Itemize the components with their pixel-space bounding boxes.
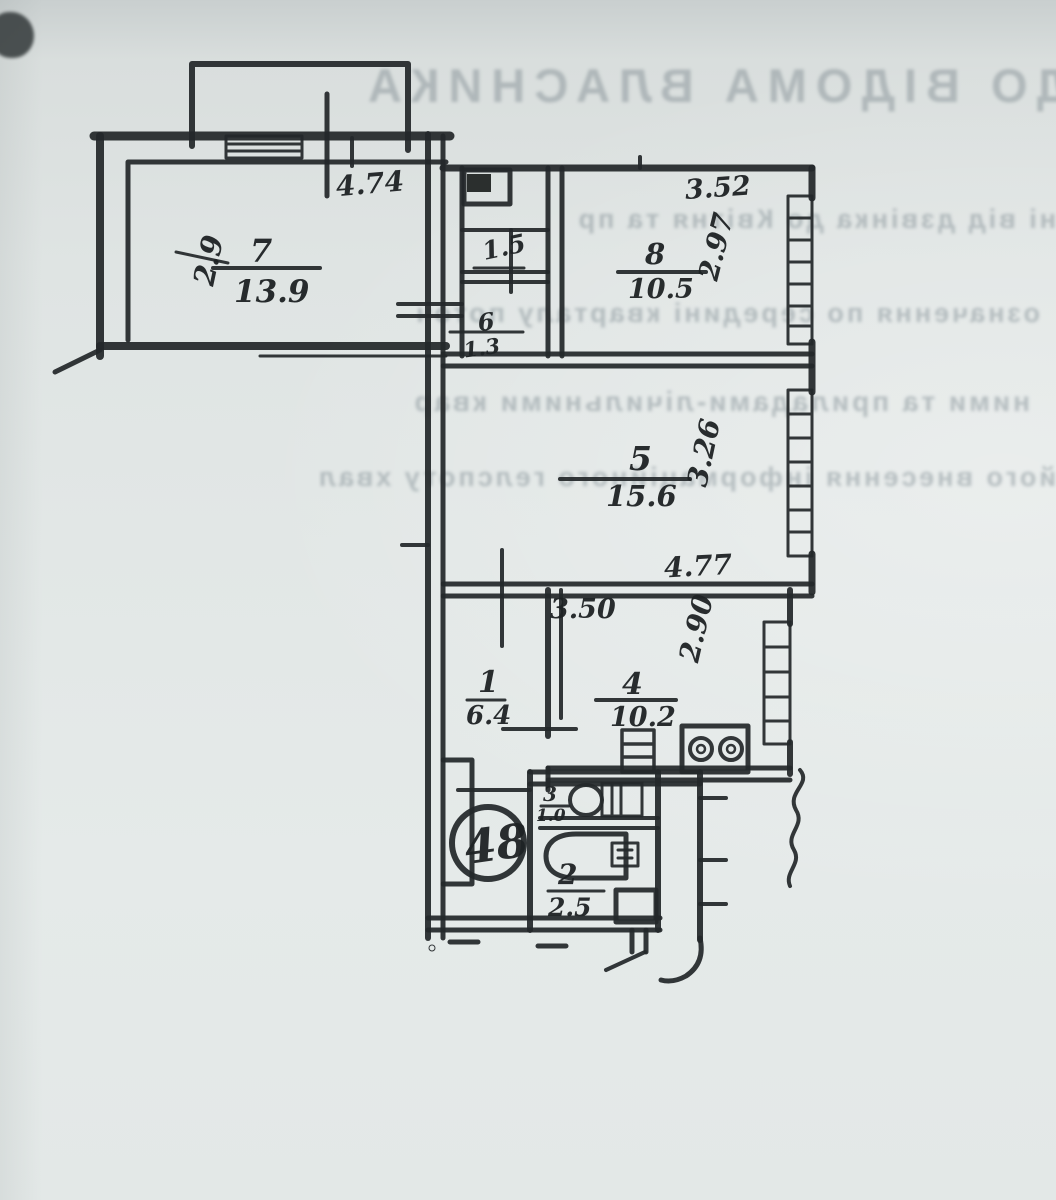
room8-number-label: 8	[644, 237, 665, 271]
window-icon	[764, 622, 790, 744]
room-labels: 7 13.9 2.9 8 10.5 2.97 3.52 1.5 6 1.3 5 …	[186, 164, 751, 922]
wall-break-mark	[789, 770, 803, 886]
room8-width-dim: 3.52	[684, 170, 752, 206]
room7-depth-dim: 2.9	[186, 232, 230, 289]
room3-number-label: 3	[543, 782, 557, 806]
room3-area-label: 1.0	[536, 806, 566, 826]
burner-icon	[690, 738, 712, 760]
floor-plan: 48 7 13.9 2.9 8 10.5 2.97 3.52 1.5 6 1.3…	[0, 0, 1056, 1200]
toilet-icon	[570, 785, 602, 815]
balcony-width-dim: 4.74	[335, 164, 406, 203]
room8-area-label: 10.5	[628, 274, 694, 305]
room1-area-label: 6.4	[466, 701, 511, 731]
room5-depth-dim: 3.26	[681, 416, 727, 490]
room6-number-label: 6	[476, 306, 496, 337]
kitchen-width-dim: 3.50	[550, 594, 616, 625]
window-icon	[788, 196, 812, 344]
corridor-walls	[398, 134, 462, 938]
room5-area-label: 15.6	[606, 479, 677, 513]
door-swing-mark	[606, 952, 645, 970]
room5-number-label: 5	[629, 439, 652, 478]
toilet-cistern-icon	[602, 783, 642, 816]
room4-number-label: 4	[622, 667, 643, 702]
room5-width-dim: 4.77	[663, 548, 733, 585]
apartment-number-circle: 48	[452, 807, 532, 879]
apartment-number-label: 48	[461, 813, 532, 875]
burner-icon	[720, 738, 742, 760]
burner-icon	[727, 745, 735, 753]
room8-depth-dim: 2.97	[692, 209, 741, 285]
burner-icon	[697, 745, 705, 753]
room2-number-label: 2	[557, 858, 577, 891]
window-icon	[788, 390, 812, 556]
vent-shaft-fill	[467, 174, 491, 192]
scanned-floor-plan-page: ДО ВІДОМА ВЛАСНИКА ні від дзвінка до Кві…	[0, 0, 1056, 1200]
room1-number-label: 1	[478, 665, 499, 700]
room7-area-label: 13.9	[234, 274, 310, 310]
closet-block	[450, 168, 562, 356]
room2-area-label: 2.5	[547, 893, 592, 922]
closet-area-label: 1.5	[480, 228, 529, 265]
windows	[764, 196, 812, 744]
room6-area-label: 1.3	[462, 333, 502, 363]
room7-number-label: 7	[250, 232, 272, 270]
room4-area-label: 10.2	[610, 702, 676, 733]
kitchen-depth-dim: 2.90	[672, 591, 720, 666]
